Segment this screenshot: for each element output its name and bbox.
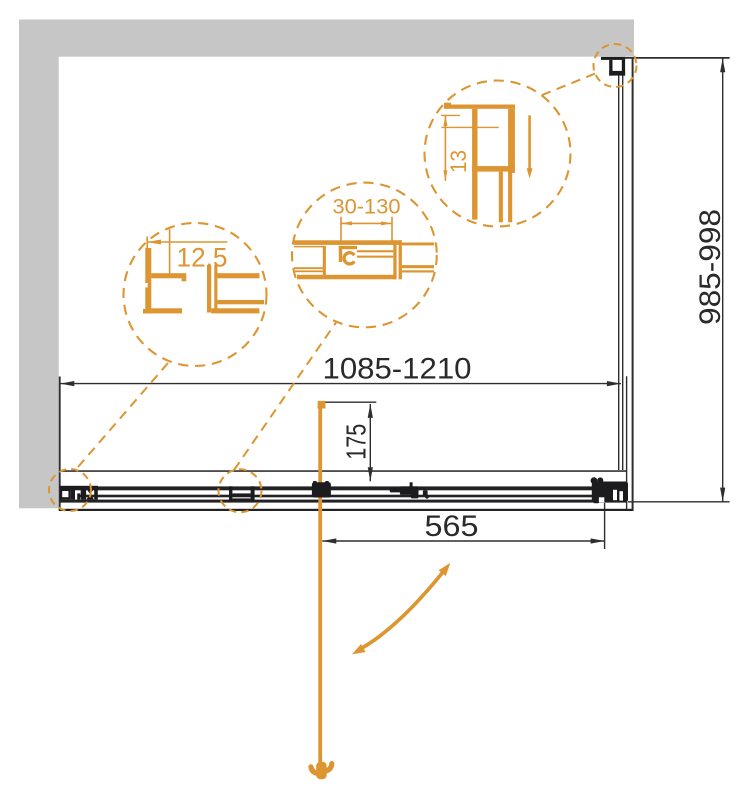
svg-text:12.5: 12.5 xyxy=(177,243,228,273)
svg-text:1085-1210: 1085-1210 xyxy=(323,353,472,386)
svg-text:30-130: 30-130 xyxy=(333,195,401,219)
svg-text:175: 175 xyxy=(341,424,372,460)
svg-text:985-998: 985-998 xyxy=(694,209,727,325)
svg-text:565: 565 xyxy=(425,510,479,543)
svg-text:13: 13 xyxy=(446,150,471,173)
